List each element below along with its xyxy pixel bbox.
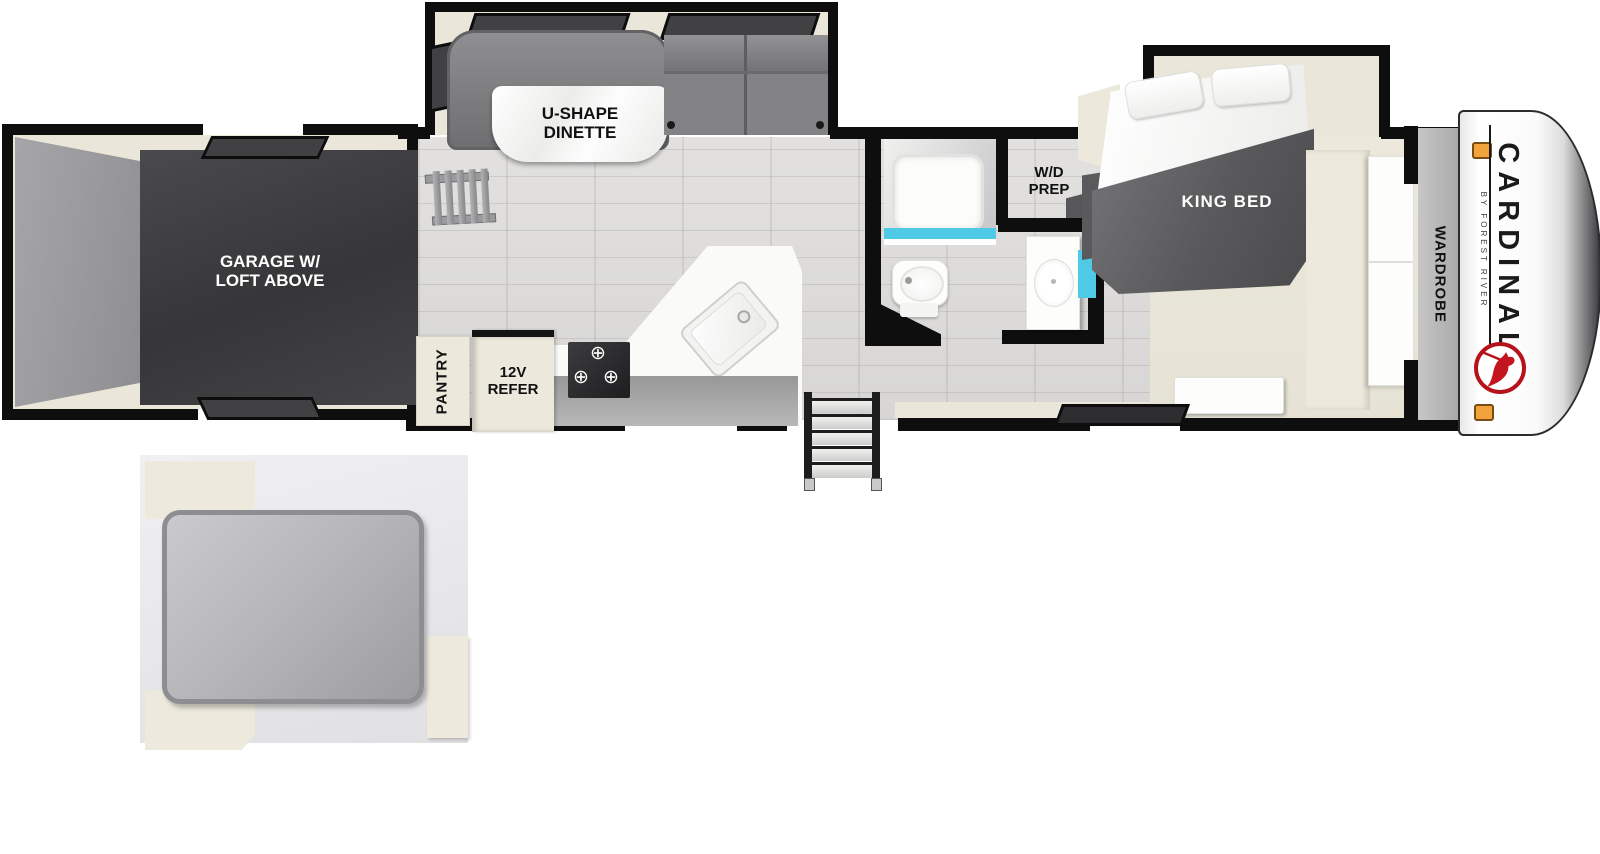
refer-label-line2: REFER — [472, 382, 554, 399]
wardrobe: WARDROBE — [1418, 128, 1460, 420]
toilet — [892, 260, 948, 306]
burner-icon: ⊕ — [603, 366, 619, 389]
king-bed-label: KING BED — [1162, 192, 1292, 211]
garage-window-top-gap — [203, 124, 303, 135]
wd-prep-label: W/D PREP — [1006, 165, 1092, 199]
burner-icon: ⊕ — [573, 366, 589, 389]
bed-pillow-right — [1210, 63, 1291, 108]
bedroom-window — [1054, 404, 1190, 426]
loft-ladder — [424, 166, 495, 231]
burner-icon: ⊕ — [590, 342, 606, 365]
step-tread — [812, 446, 872, 461]
step-tread — [812, 414, 872, 429]
sofa-seat — [664, 71, 828, 74]
loft-cabinet-right — [427, 636, 468, 738]
front-cap: CARDINAL BY FOREST RIVER — [1458, 110, 1600, 436]
loft-mattress — [162, 510, 424, 704]
sofa-handle-left — [667, 121, 675, 129]
dinette-label: U-SHAPE DINETTE — [492, 104, 668, 142]
entry-steps — [802, 392, 884, 490]
step-tread — [812, 398, 872, 413]
toilet-seat — [900, 266, 944, 302]
refrigerator-label: 12V REFER — [472, 365, 554, 399]
bath-wall-vanity-bottom — [1002, 330, 1104, 344]
bathroom-vanity — [1026, 236, 1080, 330]
step-rail-left — [804, 392, 812, 478]
vanity-drain — [1051, 279, 1056, 284]
step-rail-right — [872, 392, 880, 478]
sofa — [664, 35, 828, 135]
step-tread — [812, 462, 872, 478]
refrigerator: 12V REFER — [472, 330, 554, 432]
bird-icon — [1472, 338, 1528, 398]
shower — [884, 139, 996, 245]
bed-bench — [1174, 377, 1284, 414]
toilet-base — [900, 303, 938, 317]
step-foot-right — [871, 478, 882, 491]
wardrobe-wall-bottom — [1404, 360, 1418, 418]
garage-label-line2: LOFT ABOVE — [150, 271, 390, 290]
shower-threshold — [884, 228, 996, 239]
bedroom-dresser-base — [1306, 150, 1370, 410]
pantry-cabinet: PANTRY — [416, 336, 470, 426]
bath-wall-left — [865, 133, 881, 313]
stove: ⊕ ⊕ ⊕ — [568, 342, 630, 398]
dinette-label-line1: U-SHAPE — [492, 104, 668, 123]
garage-label-line1: GARAGE W/ — [150, 252, 390, 271]
step-foot-left — [804, 478, 815, 491]
garage-window-top — [201, 136, 330, 159]
cardinal-logo — [1472, 338, 1528, 398]
marker-light-bottom — [1474, 404, 1494, 421]
garage-ramp-door — [15, 137, 141, 407]
sofa-handle-right — [816, 121, 824, 129]
wardrobe-wall-top — [1404, 126, 1418, 184]
king-bed-label-text: KING BED — [1181, 192, 1272, 211]
dinette-label-line2: DINETTE — [492, 123, 668, 142]
toilet-flush — [905, 277, 912, 284]
garage-label: GARAGE W/ LOFT ABOVE — [150, 252, 390, 290]
step-tread — [812, 430, 872, 445]
pantry-label: PANTRY — [435, 333, 452, 429]
floorplan-canvas: GARAGE W/ LOFT ABOVE U-SHAPE DINETTE — [0, 0, 1600, 854]
refer-label-line1: 12V — [472, 365, 554, 382]
shower-sill — [884, 239, 996, 245]
sofa-seat-seam — [744, 35, 747, 135]
shower-pan — [892, 154, 984, 232]
wd-label-line1: W/D — [1006, 165, 1092, 182]
garage-window-bottom — [197, 397, 324, 420]
wardrobe-label: WARDROBE — [1431, 204, 1448, 344]
